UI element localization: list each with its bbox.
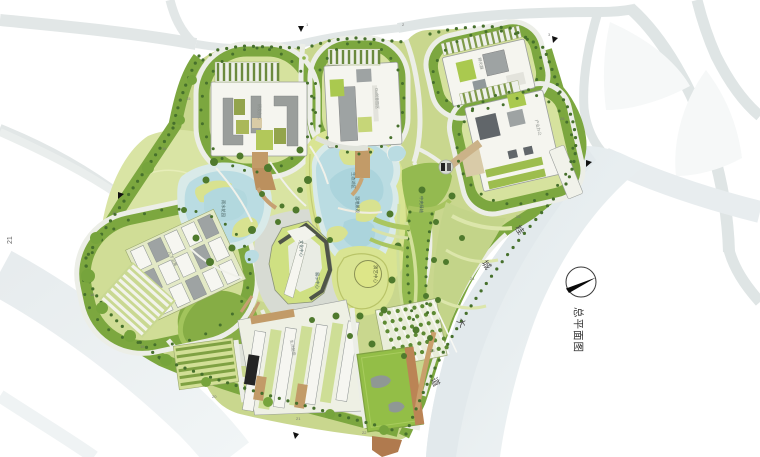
svg-text:21: 21 xyxy=(7,236,14,244)
svg-text:雨水花园: 雨水花园 xyxy=(220,200,227,217)
svg-text:湿地景观: 湿地景观 xyxy=(354,196,361,214)
svg-text:17: 17 xyxy=(112,210,117,215)
svg-text:研发办公: 研发办公 xyxy=(257,104,263,120)
svg-text:25: 25 xyxy=(516,214,521,219)
svg-text:21: 21 xyxy=(296,416,301,421)
svg-text:15: 15 xyxy=(186,96,191,101)
svg-text:演艺中心: 演艺中心 xyxy=(372,265,379,283)
svg-text:22: 22 xyxy=(362,430,367,435)
svg-text:中央绿轴: 中央绿轴 xyxy=(418,196,425,213)
svg-text:Ox创意园区: Ox创意园区 xyxy=(374,88,381,109)
svg-text:23: 23 xyxy=(430,348,435,353)
svg-text:生态湖区: 生态湖区 xyxy=(350,172,357,189)
svg-text:总平面图: 总平面图 xyxy=(572,307,585,353)
svg-text:19: 19 xyxy=(140,344,145,349)
svg-text:24: 24 xyxy=(470,276,475,281)
svg-text:18: 18 xyxy=(90,292,95,297)
svg-text:16: 16 xyxy=(162,146,167,151)
svg-text:文化中心: 文化中心 xyxy=(298,240,305,258)
svg-text:20: 20 xyxy=(212,394,217,399)
svg-text:26: 26 xyxy=(560,116,565,121)
svg-text:展示中心: 展示中心 xyxy=(314,272,321,290)
